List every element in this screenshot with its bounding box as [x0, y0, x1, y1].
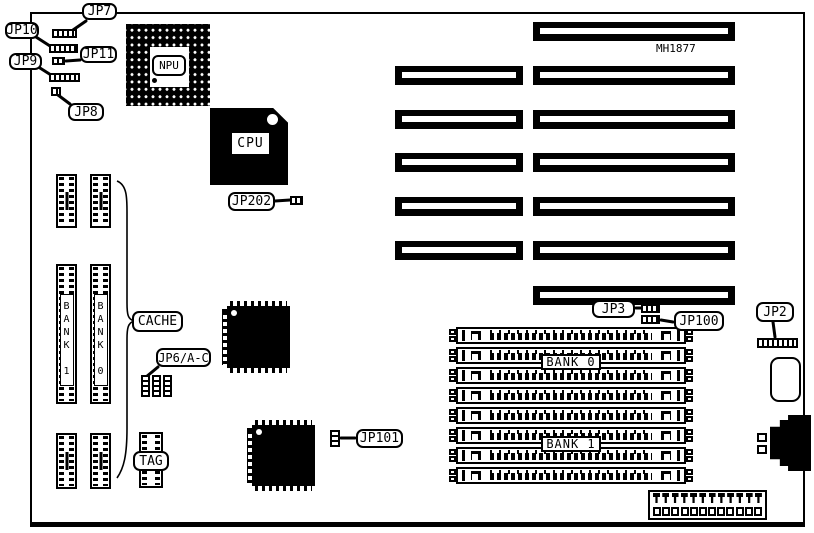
- power-pin-socket: [671, 507, 679, 516]
- jp100-text: JP100: [679, 315, 718, 328]
- label-jp11: JP11: [80, 46, 117, 63]
- simm-mount-tab: [686, 369, 693, 375]
- simm-mount-tab: [449, 476, 456, 482]
- simm-latch: [471, 351, 481, 360]
- simm-contact-teeth: [490, 370, 652, 381]
- simm-contact-teeth: [490, 410, 652, 421]
- cache-bank0-chip: BANK 0: [90, 264, 111, 404]
- label-jp202: JP202: [228, 192, 275, 211]
- simm-end-bar: [677, 430, 680, 441]
- simm-mount-tab: [449, 356, 456, 362]
- jumper-block-jp6b: [152, 375, 161, 397]
- simm-mount-tab: [686, 349, 693, 355]
- label-jp8: JP8: [68, 103, 104, 121]
- simm-mount-tab: [449, 349, 456, 355]
- power-pin-socket: [699, 507, 707, 516]
- board-model-text: MH1877: [656, 42, 696, 55]
- simm-mount-tab: [686, 356, 693, 362]
- simm-latch: [471, 431, 481, 440]
- simm-mount-tab: [449, 396, 456, 402]
- label-jp10: JP10: [5, 22, 39, 39]
- expansion-slot-contact: [402, 72, 516, 78]
- dip-notch: [65, 452, 68, 471]
- power-pin: [727, 493, 734, 503]
- jumper-block-jp202: [290, 196, 303, 205]
- power-pin: [662, 493, 669, 503]
- cache-text: CACHE: [138, 315, 177, 328]
- jumper-block-jp101: [330, 430, 340, 447]
- label-jp2: JP2: [756, 302, 794, 322]
- simm-mount-tab: [686, 429, 693, 435]
- simm-mount-tab: [686, 389, 693, 395]
- dip-notch: [99, 452, 102, 471]
- cache-dip-chip: [56, 433, 77, 489]
- label-jp100: JP100: [674, 311, 724, 331]
- expansion-slot: [533, 66, 735, 85]
- power-pin-socket: [754, 507, 762, 516]
- expansion-slot: [533, 197, 735, 216]
- simm-end-bar: [462, 370, 465, 381]
- simm-mount-tab: [449, 409, 456, 415]
- power-pin: [653, 493, 660, 503]
- simm-mount-tab: [686, 476, 693, 482]
- simm-end-bar: [462, 330, 465, 341]
- power-pin: [746, 493, 753, 503]
- cache-dip-chip: [90, 433, 111, 489]
- cache-dip-chip: [90, 174, 111, 228]
- jumper-block-jp6a: [141, 375, 150, 397]
- jp10-text: JP10: [6, 24, 37, 37]
- simm-mount-tab: [449, 369, 456, 375]
- simm-end-bar: [677, 330, 680, 341]
- simm-mount-tab: [449, 336, 456, 342]
- jumper-block-jp100: [641, 315, 660, 324]
- jp3-text: JP3: [602, 303, 625, 316]
- cache-dip-chip: [56, 174, 77, 228]
- label-jp6ac: JP6/A-C: [156, 348, 211, 367]
- qfp-body: [227, 306, 290, 368]
- simm-end-bar: [677, 470, 680, 481]
- simm-mount-tab: [686, 416, 693, 422]
- expansion-slot: [395, 241, 523, 260]
- power-pin-socket: [726, 507, 734, 516]
- power-pin-socket: [653, 507, 661, 516]
- npu-inner-window: NPU: [150, 47, 189, 87]
- expansion-slot-contact: [540, 292, 728, 298]
- battery: [770, 357, 801, 402]
- label-cache: CACHE: [132, 311, 183, 332]
- simm-mount-tab: [449, 449, 456, 455]
- power-pin: [736, 493, 743, 503]
- simm-latch: [471, 411, 481, 420]
- jp9-text: JP9: [14, 55, 37, 68]
- power-pin: [755, 493, 762, 503]
- expansion-slot: [533, 286, 735, 305]
- simm-mount-tab: [686, 456, 693, 462]
- npu-label: NPU: [152, 55, 186, 76]
- chipset-qfp-chip: [247, 420, 320, 491]
- simm-latch: [471, 371, 481, 380]
- expansion-slot-contact: [540, 116, 728, 122]
- jp202-text: JP202: [232, 195, 271, 208]
- simm-end-bar: [462, 430, 465, 441]
- simm-bank-area: [456, 327, 686, 487]
- power-socket-row: [653, 507, 762, 516]
- jp7-text: JP7: [88, 5, 111, 18]
- simm-mount-tab: [449, 416, 456, 422]
- jp6ac-text: JP6/A-C: [158, 352, 209, 364]
- jumper-block-jp3: [641, 304, 660, 313]
- expansion-slot-contact: [402, 247, 516, 253]
- power-pin-socket: [708, 507, 716, 516]
- simm-end-bar: [462, 390, 465, 401]
- cache-bank0-label: BANK 0: [94, 294, 108, 386]
- simm-end-bar: [677, 370, 680, 381]
- dip-notch: [65, 192, 68, 210]
- power-pin: [690, 493, 697, 503]
- simm-contact-teeth: [490, 470, 652, 481]
- simm-latch: [471, 331, 481, 340]
- power-pin: [709, 493, 716, 503]
- jp101-text: JP101: [360, 432, 399, 445]
- simm-mount-tab: [449, 429, 456, 435]
- power-pin: [681, 493, 688, 503]
- power-pin-socket: [736, 507, 744, 516]
- simm-latch: [661, 351, 671, 360]
- cache-bank1-label: BANK 1: [60, 294, 74, 386]
- expansion-slot-contact: [402, 116, 516, 122]
- jumper-block-jp11: [52, 57, 65, 65]
- simm-latch: [661, 451, 671, 460]
- expansion-slot-contact: [540, 247, 728, 253]
- expansion-slot: [395, 66, 523, 85]
- simm-latch: [661, 391, 671, 400]
- simm-latch: [471, 391, 481, 400]
- expansion-slot: [533, 22, 735, 41]
- tag-text: TAG: [139, 455, 162, 468]
- power-pin: [699, 493, 706, 503]
- bank1-label: BANK 1: [541, 436, 601, 452]
- expansion-slot: [533, 241, 735, 260]
- qfp-pins-bottom: [255, 486, 312, 491]
- power-pin: [718, 493, 725, 503]
- power-pin-socket: [662, 507, 670, 516]
- simm-socket: [456, 387, 686, 404]
- simm-latch: [661, 431, 671, 440]
- simm-latch: [471, 451, 481, 460]
- label-jp7: JP7: [82, 3, 117, 20]
- simm-mount-tab: [449, 329, 456, 335]
- simm-latch: [661, 371, 671, 380]
- simm-latch: [471, 471, 481, 480]
- simm-end-bar: [462, 350, 465, 361]
- power-pin-socket: [690, 507, 698, 516]
- expansion-slot-contact: [540, 203, 728, 209]
- power-pin-socket: [681, 507, 689, 516]
- simm-socket: [456, 467, 686, 484]
- simm-mount-tab: [449, 376, 456, 382]
- npu-socket: NPU: [126, 24, 210, 106]
- jumper-block-jp9: [49, 73, 80, 82]
- simm-mount-tab: [686, 469, 693, 475]
- cpu-label: CPU: [232, 133, 269, 154]
- jp11-text: JP11: [83, 48, 114, 61]
- expansion-slot-contact: [540, 72, 728, 78]
- simm-mount-tab: [686, 396, 693, 402]
- label-jp101: JP101: [356, 429, 403, 448]
- qfp-pin1-dot: [231, 310, 237, 316]
- expansion-slot-contact: [540, 159, 728, 165]
- qfp-pin1-dot: [256, 429, 262, 435]
- simm-mount-tab: [686, 336, 693, 342]
- expansion-slot: [395, 197, 523, 216]
- jumper-block-jp8: [51, 87, 61, 96]
- simm-mount-tab: [686, 449, 693, 455]
- power-pin-row: [653, 493, 762, 504]
- expansion-slot: [395, 153, 523, 172]
- cpu-chip: CPU: [210, 108, 288, 185]
- qfp-body: [252, 425, 315, 486]
- power-pin: [672, 493, 679, 503]
- simm-end-bar: [677, 450, 680, 461]
- simm-end-bar: [677, 410, 680, 421]
- expansion-slot-contact: [402, 159, 516, 165]
- power-connector: [648, 490, 767, 520]
- keyboard-connector-pin: [757, 445, 767, 454]
- jumper-block-jp2: [757, 338, 798, 348]
- bank0-label: BANK 0: [541, 354, 601, 370]
- simm-contact-teeth: [490, 330, 652, 341]
- expansion-slot-contact: [402, 203, 516, 209]
- simm-mount-tab: [449, 436, 456, 442]
- simm-latch: [661, 471, 671, 480]
- simm-end-bar: [462, 470, 465, 481]
- simm-mount-tab: [686, 376, 693, 382]
- jumper-block-jp7: [52, 29, 77, 38]
- npu-text: NPU: [159, 59, 179, 72]
- simm-contact-teeth: [490, 390, 652, 401]
- expansion-slot: [395, 110, 523, 129]
- simm-mount-tab: [686, 436, 693, 442]
- jumper-block-jp10: [49, 44, 78, 53]
- expansion-slot: [533, 153, 735, 172]
- simm-latch: [661, 411, 671, 420]
- label-tag: TAG: [133, 451, 169, 471]
- motherboard-diagram: JP7 JP10 JP11 JP9 JP8 NPU CPU JP202 MH18…: [0, 0, 814, 533]
- simm-mount-tab: [449, 389, 456, 395]
- cpu-pin1-dot: [267, 114, 278, 125]
- npu-pin1-dot: [152, 78, 157, 83]
- simm-socket: [456, 327, 686, 344]
- expansion-slot: [533, 110, 735, 129]
- simm-end-bar: [462, 410, 465, 421]
- keyboard-connector-pin: [757, 433, 767, 442]
- simm-socket: [456, 407, 686, 424]
- simm-latch: [661, 331, 671, 340]
- power-pin-socket: [745, 507, 753, 516]
- label-jp9: JP9: [9, 53, 42, 70]
- qfp-pins-bottom: [230, 368, 287, 373]
- expansion-slot-contact: [540, 28, 728, 34]
- jumper-block-jp6c: [163, 375, 172, 397]
- jp8-text: JP8: [74, 106, 97, 119]
- cache-bank1-chip: BANK 1: [56, 264, 77, 404]
- simm-mount-tab: [449, 456, 456, 462]
- simm-end-bar: [462, 450, 465, 461]
- simm-end-bar: [677, 390, 680, 401]
- label-jp3: JP3: [592, 300, 635, 318]
- chipset-qfp-chip: [222, 301, 295, 373]
- power-pin-socket: [717, 507, 725, 516]
- simm-mount-tab: [686, 409, 693, 415]
- simm-mount-tab: [449, 469, 456, 475]
- simm-end-bar: [677, 350, 680, 361]
- cpu-text: CPU: [237, 136, 263, 151]
- dip-notch: [99, 192, 102, 210]
- jp2-text: JP2: [763, 306, 786, 319]
